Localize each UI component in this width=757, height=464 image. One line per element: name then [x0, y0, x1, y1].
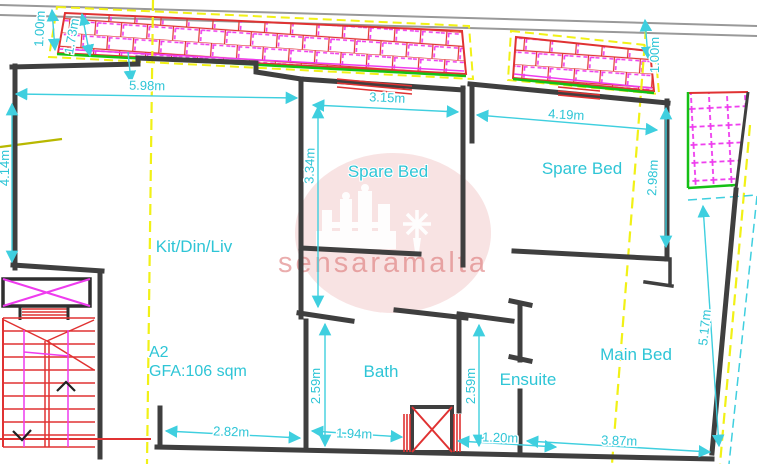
floor-plan-page: sensaramalta	[0, 0, 757, 464]
dim-stair-width: 2.82m	[213, 423, 250, 439]
label-bath: Bath	[364, 362, 399, 381]
dim-kit-width: 5.98m	[129, 78, 165, 94]
dim-bath-width: 1.94m	[336, 425, 373, 441]
label-gfa: GFA:106 sqm	[149, 363, 247, 380]
label-spare-bed-1: Spare Bed	[348, 162, 428, 181]
staircase	[3, 318, 95, 447]
dim-main-bed-height: 5.17m	[695, 309, 714, 347]
dim-ensuite-height: 2.59m	[463, 368, 478, 404]
dim-spare2-height: 2.98m	[644, 159, 661, 196]
label-main-bed: Main Bed	[600, 345, 672, 364]
floor-plan-canvas: sensaramalta	[0, 0, 757, 464]
dim-kit-height: 4.14m	[0, 150, 12, 186]
label-unit: A2	[149, 344, 169, 361]
dim-spare2-width: 4.19m	[548, 106, 585, 123]
label-ensuite: Ensuite	[500, 370, 557, 389]
dim-spare1-height: 3.34m	[301, 148, 317, 185]
lift-shaft	[3, 279, 90, 320]
dim-pavement-right: 1.00m	[647, 37, 662, 73]
services-shaft	[404, 407, 460, 452]
dim-pavement-left: 1.00m	[31, 10, 48, 47]
dim-main-bed-width: 3.87m	[601, 432, 638, 448]
dim-bath-height: 2.59m	[308, 368, 323, 404]
dim-spare1-width: 3.15m	[369, 89, 406, 106]
label-spare-bed-2: Spare Bed	[542, 159, 622, 178]
label-kitchen-living: Kit/Din/Liv	[156, 237, 233, 256]
dim-ensuite-width: 1.20m	[482, 429, 519, 445]
